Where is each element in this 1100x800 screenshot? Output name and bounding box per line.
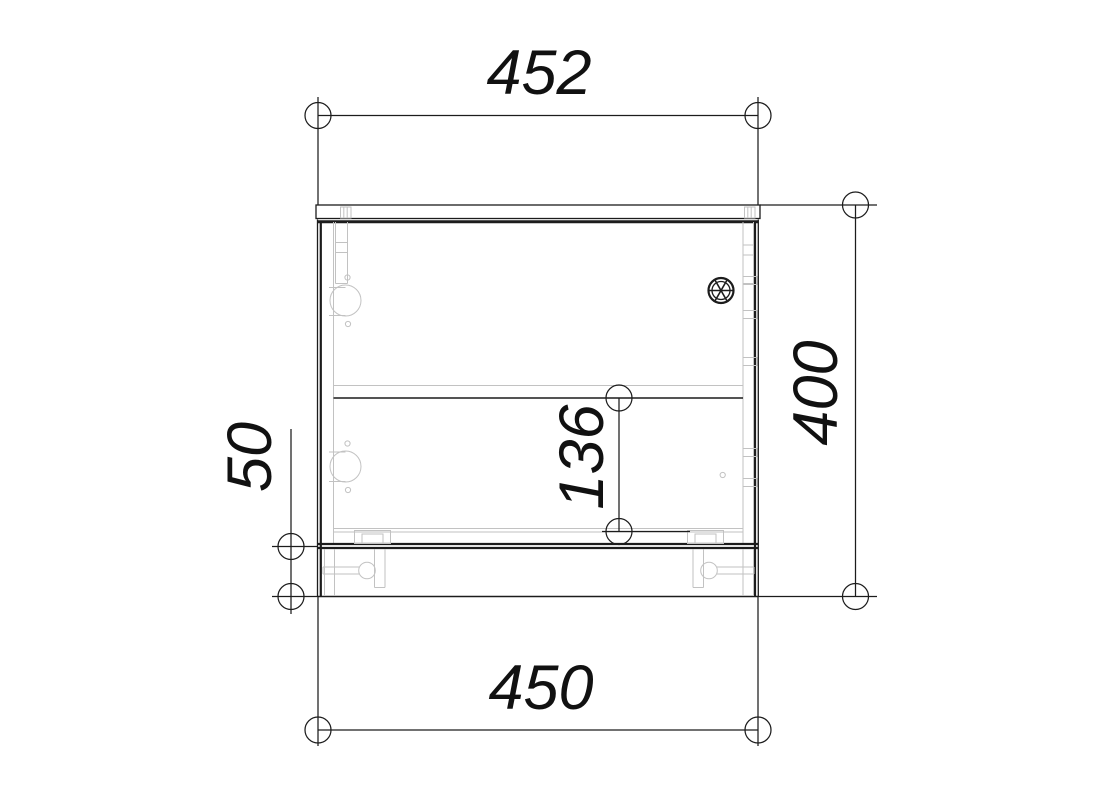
dimension-plinth-height: 50: [215, 422, 318, 614]
bottom-panel: [318, 529, 758, 549]
drawing-canvas: 452 450 400 136 50: [0, 0, 1100, 800]
plinth: [325, 550, 754, 597]
dimension-label-top-width: 452: [486, 38, 591, 108]
leg-foot-icon: [359, 562, 376, 579]
dimension-label-overall-height: 400: [781, 340, 851, 445]
cam-lock-icon: [709, 278, 734, 303]
left-side-panel: [318, 220, 334, 597]
dimension-label-plinth-height: 50: [215, 422, 285, 492]
dimension-overall-height: 400: [758, 192, 877, 610]
right-side-panel: [743, 220, 758, 597]
dimension-bottom-width: 450: [305, 597, 771, 747]
dimension-top-width: 452: [305, 38, 771, 206]
dimension-label-bottom-width: 450: [488, 653, 593, 723]
shelf-pin-hole-icon: [720, 472, 725, 477]
carcass: [318, 220, 759, 597]
corner-connector-right: [743, 245, 754, 284]
dimension-shelf-spacing: 136: [547, 385, 690, 545]
hinge-screw-icon: [345, 487, 350, 492]
adjustable-leg-right: [688, 531, 755, 588]
hinge-screw-icon: [345, 321, 350, 326]
panel-screw-fitting-right: [745, 207, 756, 218]
shelf: [334, 386, 744, 399]
panel-screw-fitting-left: [341, 207, 352, 218]
corner-connector-left: [336, 222, 348, 284]
technical-drawing: 452 450 400 136 50: [0, 0, 1100, 800]
top-panel: [316, 205, 760, 219]
cabinet-section: [316, 205, 760, 597]
dimension-label-shelf-spacing: 136: [547, 403, 617, 509]
hinge-screw-icon: [345, 441, 350, 446]
